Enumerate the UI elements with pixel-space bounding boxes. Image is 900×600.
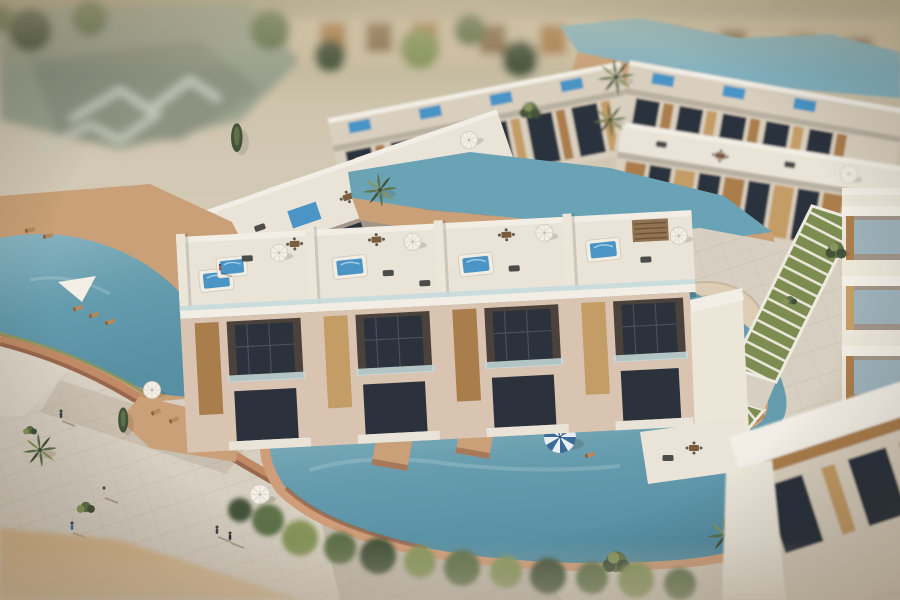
aerial-resort-render: Aerial tilt-shift 3D render of a modern … (0, 0, 900, 600)
scene-canvas: Aerial tilt-shift 3D render of a modern … (0, 0, 900, 600)
vignette (0, 0, 900, 600)
